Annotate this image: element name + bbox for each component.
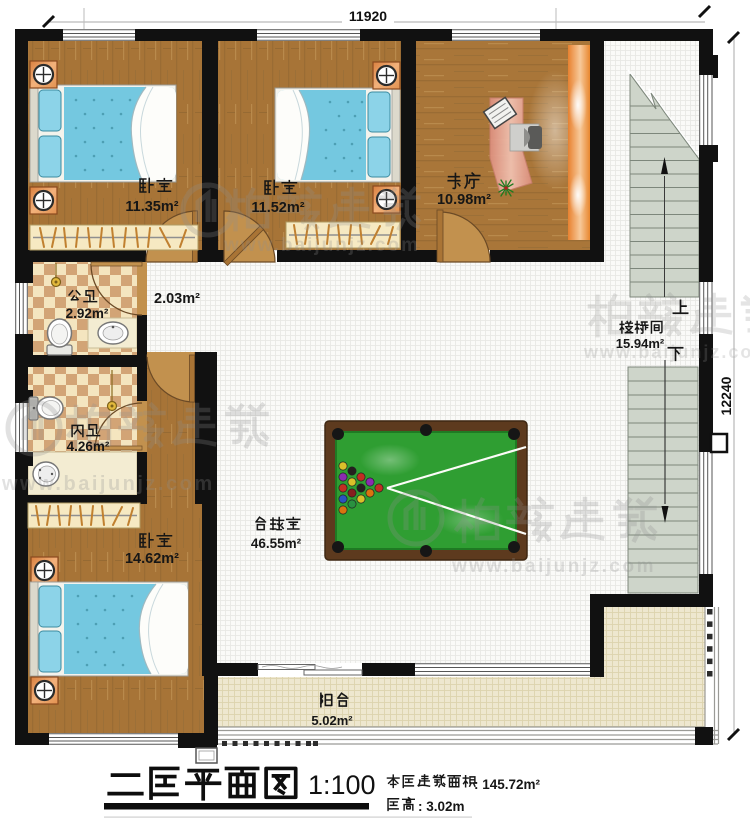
svg-text:www.baijunjz.com: www.baijunjz.com bbox=[583, 342, 750, 362]
svg-text:14.62m²: 14.62m² bbox=[125, 551, 179, 567]
svg-text:5.02m²: 5.02m² bbox=[311, 713, 353, 728]
svg-text:2.92m²: 2.92m² bbox=[66, 306, 109, 321]
svg-text:: 145.72m²: : 145.72m² bbox=[474, 777, 541, 792]
svg-text:11.52m²: 11.52m² bbox=[251, 200, 304, 216]
svg-text:11.35m²: 11.35m² bbox=[125, 199, 178, 215]
svg-text:www.baijunjz.com: www.baijunjz.com bbox=[223, 235, 420, 256]
svg-text:15.94m²: 15.94m² bbox=[616, 336, 665, 351]
svg-text:4.26m²: 4.26m² bbox=[67, 439, 110, 454]
svg-text:12240: 12240 bbox=[718, 376, 734, 415]
svg-text:10.98m²: 10.98m² bbox=[437, 192, 491, 208]
svg-text:www.baijunjz.com: www.baijunjz.com bbox=[451, 556, 656, 577]
svg-text:11920: 11920 bbox=[349, 8, 387, 24]
svg-text:www.baijunjz.com: www.baijunjz.com bbox=[1, 473, 215, 495]
svg-text:1:100: 1:100 bbox=[308, 770, 376, 800]
svg-text:: 3.02m: : 3.02m bbox=[418, 799, 465, 814]
svg-text:46.55m²: 46.55m² bbox=[251, 536, 302, 551]
svg-text:2.03m²: 2.03m² bbox=[154, 291, 200, 307]
